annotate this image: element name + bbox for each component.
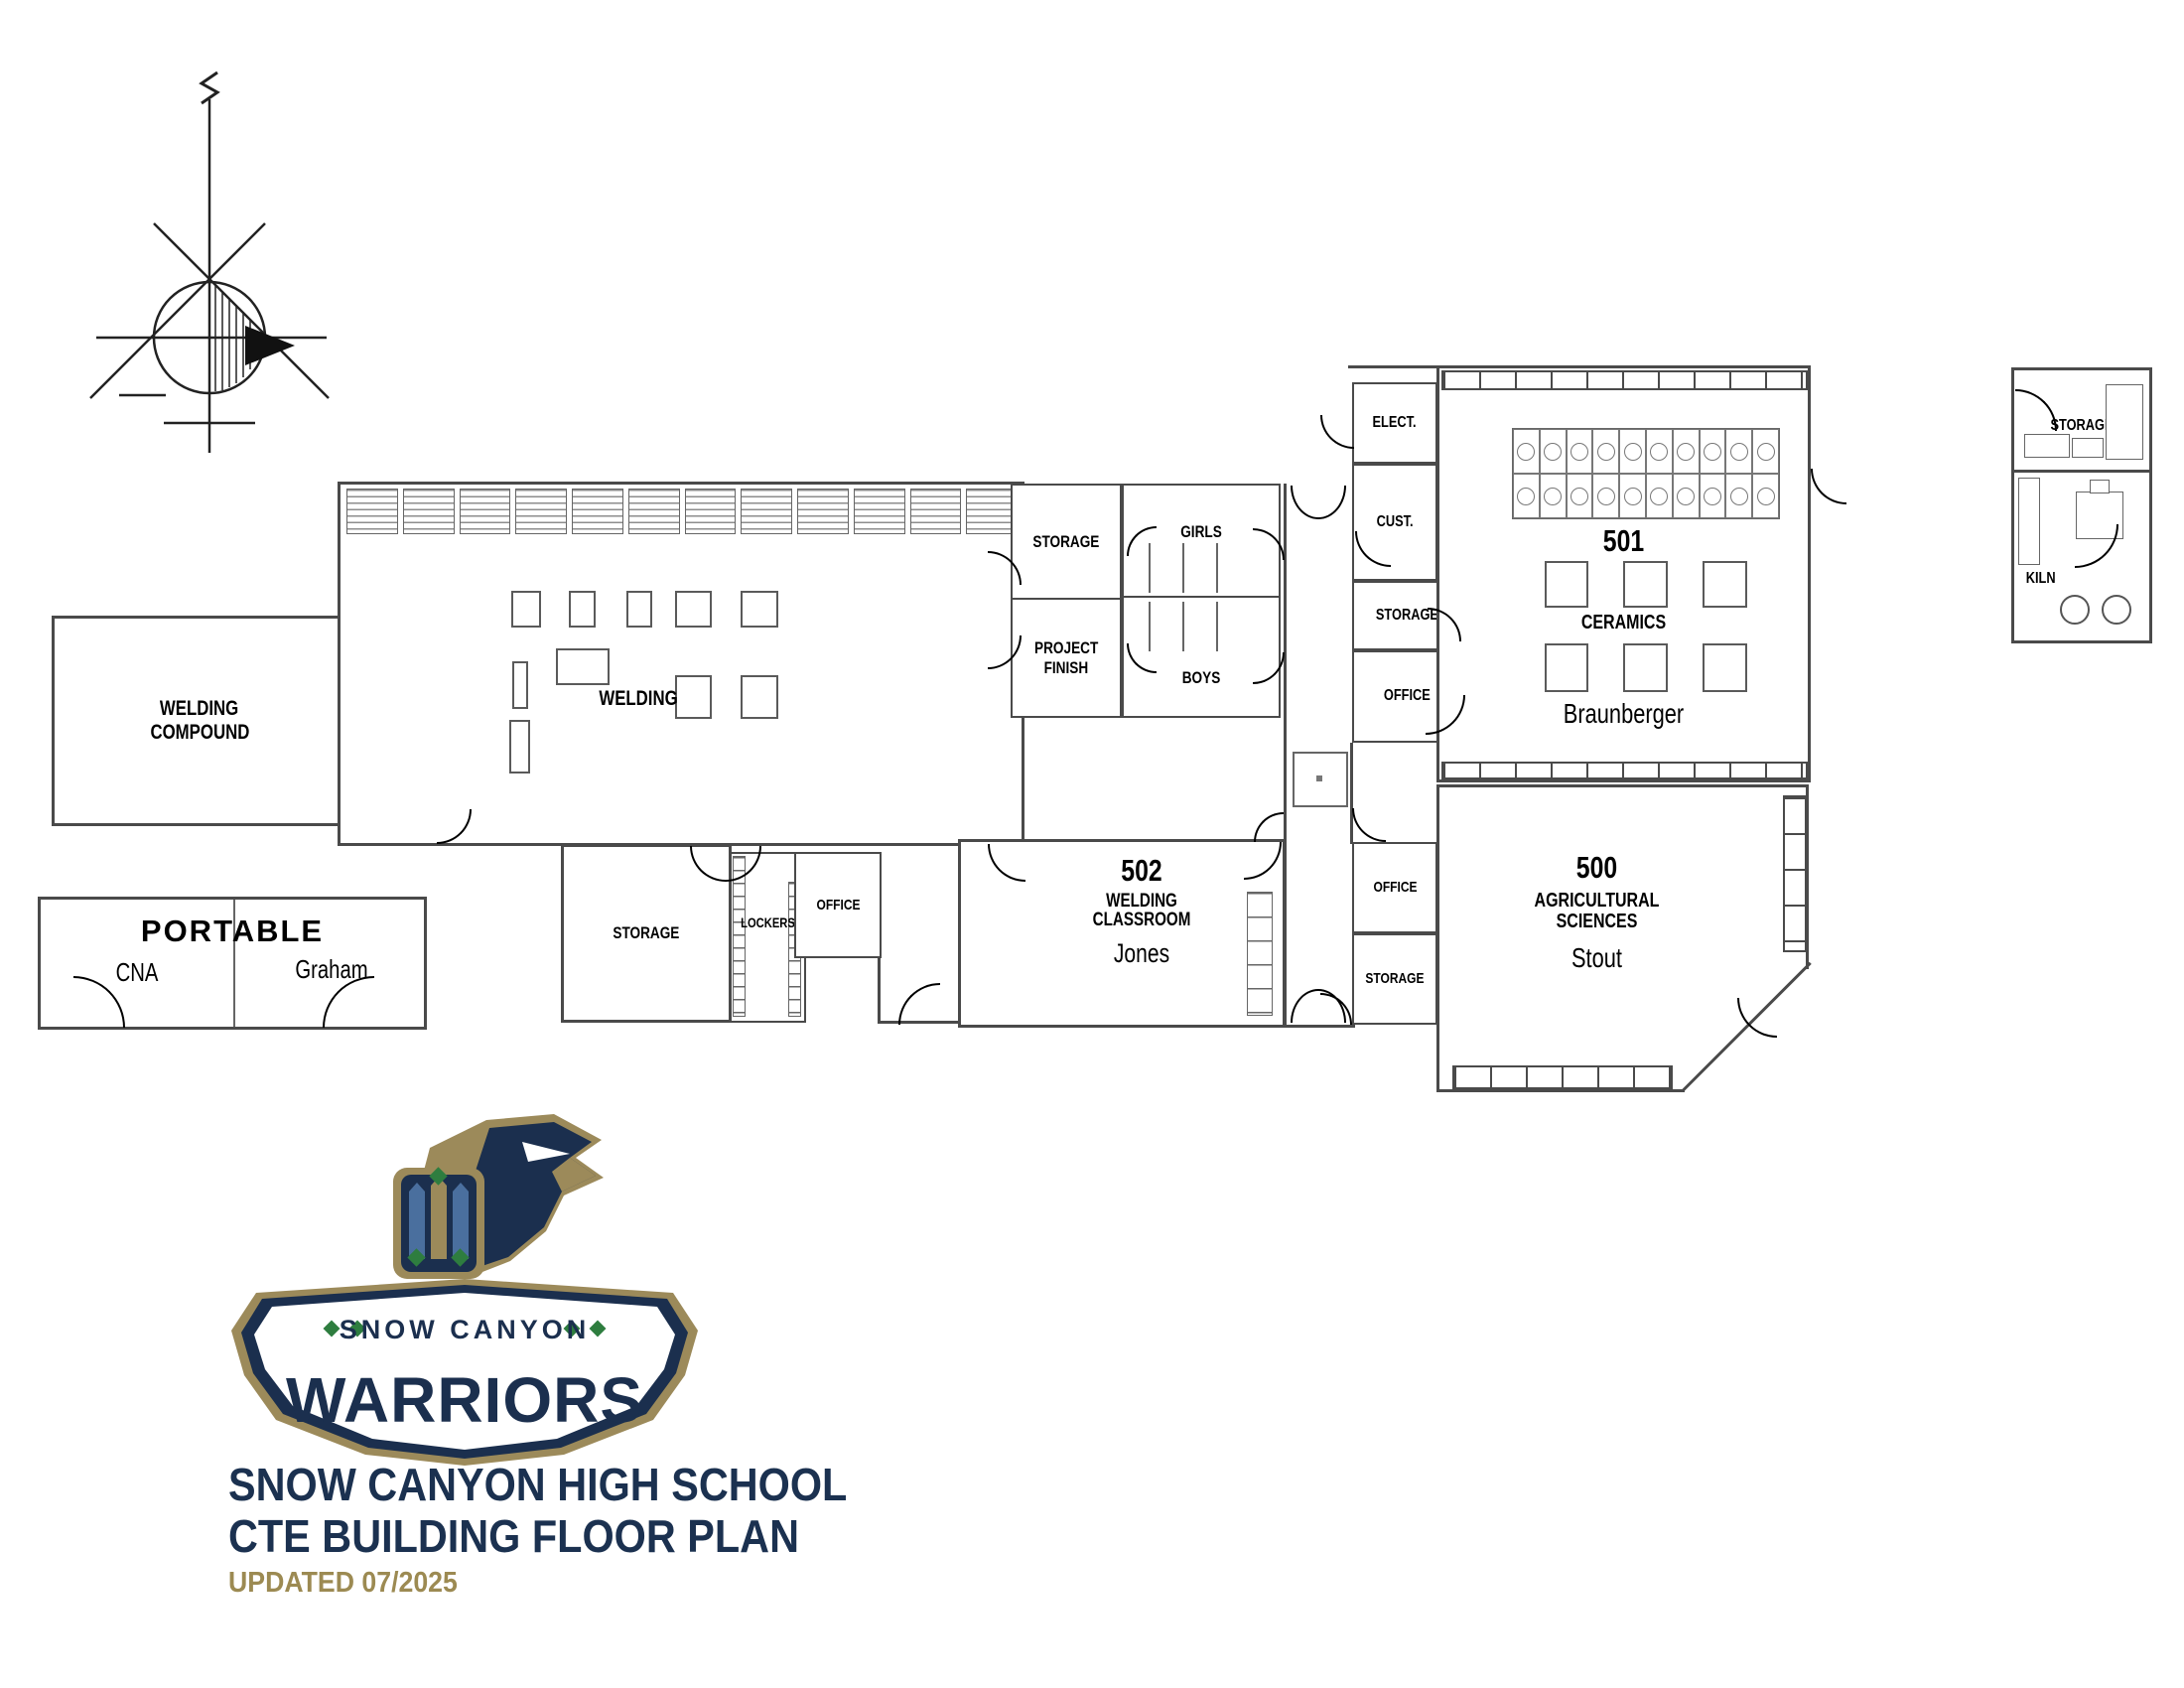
pottery-station	[1513, 474, 1540, 518]
room-label: OFFICE	[1373, 880, 1417, 896]
pottery-station	[1700, 474, 1726, 518]
door-arc	[1291, 486, 1318, 519]
welding-booth	[685, 489, 737, 534]
door-arc	[1352, 808, 1386, 842]
wall	[1436, 1089, 1685, 1092]
room-label: CERAMICS	[1476, 613, 1771, 633]
room-label: WELDING	[1044, 892, 1238, 912]
work-table	[511, 591, 541, 628]
work-table	[1703, 643, 1747, 692]
pottery-station	[1619, 474, 1646, 518]
welding-booths	[344, 487, 1020, 536]
shelf	[2024, 434, 2070, 458]
pottery-station	[1619, 429, 1646, 474]
room-label: FINISH	[1044, 659, 1089, 677]
warriors-logo: SNOW CANYON WARRIORS	[226, 1110, 703, 1468]
north-arrow-icon	[84, 60, 342, 457]
room-label: Graham	[256, 954, 406, 985]
pottery-station	[1752, 474, 1779, 518]
room-label: OFFICE	[1384, 688, 1431, 705]
room-label: WELDING	[400, 688, 877, 710]
work-table	[1545, 561, 1588, 608]
wall	[2014, 470, 2149, 473]
pottery-station	[1646, 429, 1673, 474]
room-label: STORAGE	[1365, 971, 1424, 987]
room-label: AGRICULTURAL	[1471, 891, 1723, 912]
work-table	[675, 591, 712, 628]
welding-booth	[403, 489, 455, 534]
room-label: CLASSROOM	[1044, 911, 1238, 930]
room-label: PORTABLE	[41, 914, 424, 949]
teacher-name: Stout	[1474, 942, 1719, 974]
room-label: GIRLS	[1140, 523, 1264, 541]
work-table	[556, 648, 610, 685]
door-arc	[1318, 486, 1346, 519]
banner-top-text: SNOW CANYON	[340, 1315, 591, 1344]
wall	[1350, 743, 1353, 844]
room-501-ceramics: 501 CERAMICS Braunberger	[1436, 365, 1811, 782]
shelf	[2072, 438, 2104, 458]
room-label: KILN	[2026, 571, 2056, 588]
wall	[1284, 1025, 1355, 1028]
room-label: STORAGE	[613, 924, 679, 942]
banner-main-text: WARRIORS	[286, 1364, 643, 1436]
welding-booth	[910, 489, 962, 534]
room-number: 501	[1476, 525, 1771, 558]
work-table	[1623, 561, 1668, 608]
bathroom-stalls	[1149, 602, 1250, 651]
column	[1293, 752, 1348, 807]
room-cust: CUST.	[1352, 464, 1437, 581]
window-band	[1441, 762, 1808, 779]
pottery-station	[1752, 429, 1779, 474]
pottery-station	[1725, 429, 1752, 474]
work-table	[741, 591, 778, 628]
wall	[1806, 784, 1809, 969]
pottery-station	[1540, 429, 1567, 474]
bathroom-stalls	[1149, 543, 1250, 593]
pottery-station	[1540, 474, 1567, 518]
kiln-wheel	[2102, 595, 2131, 625]
shelf	[2018, 478, 2040, 565]
work-table	[1545, 643, 1588, 692]
pottery-station	[1673, 429, 1700, 474]
room-number: 500	[1471, 852, 1723, 885]
eagle-mascot-icon	[393, 1114, 604, 1279]
kiln-equipment	[2090, 480, 2110, 493]
work-table	[1623, 643, 1668, 692]
door-arc	[1811, 469, 1846, 504]
welding-booth	[628, 489, 680, 534]
pottery-station	[1646, 474, 1673, 518]
wall	[1348, 365, 1439, 368]
room-number: 502	[1044, 855, 1238, 888]
room-office-ag: OFFICE	[1352, 842, 1437, 933]
room-welding-compound: WELDING COMPOUND	[52, 616, 347, 826]
door-arc	[1291, 989, 1318, 1023]
updated-date: UPDATED 07/2025	[228, 1567, 458, 1600]
room-label: SCIENCES	[1471, 912, 1723, 932]
room-500-agricultural-sciences: 500 AGRICULTURAL SCIENCES Stout	[1436, 784, 1809, 1092]
pottery-station	[1673, 474, 1700, 518]
pottery-station	[1592, 474, 1619, 518]
wall	[1284, 484, 1287, 1028]
room-project-finish: PROJECT FINISH	[1011, 598, 1122, 718]
room-label: BOYS	[1140, 669, 1264, 687]
room-elect: ELECT.	[1352, 382, 1437, 464]
kiln-wheel	[2060, 595, 2090, 625]
pottery-station	[1592, 429, 1619, 474]
door-arc	[1320, 415, 1354, 449]
room-label: ELECT.	[1373, 415, 1417, 432]
pottery-wheel-stations	[1512, 428, 1780, 519]
teacher-name: Braunberger	[1480, 698, 1767, 730]
shelf	[2106, 384, 2143, 460]
door-arc	[1254, 812, 1284, 842]
welding-booth	[572, 489, 623, 534]
room-office-sw: OFFICE	[794, 852, 882, 958]
work-table	[626, 591, 652, 628]
room-label: OFFICE	[816, 898, 860, 914]
pottery-station	[1567, 474, 1593, 518]
floor-plan-page: WELDING COMPOUND WELDING STORAGE PROJECT…	[0, 0, 2184, 1688]
room-label: STORAGE	[1032, 533, 1099, 551]
welding-booth	[854, 489, 905, 534]
welding-booth	[515, 489, 567, 534]
room-storage-ag: STORAGE	[1352, 933, 1437, 1025]
welding-booth	[346, 489, 398, 534]
window-band	[1783, 795, 1807, 952]
work-table	[569, 591, 596, 628]
room-label: PROJECT	[1034, 639, 1098, 657]
welding-booth	[741, 489, 792, 534]
room-welding-shop: WELDING	[338, 482, 1024, 846]
room-label: COMPOUND	[150, 722, 249, 744]
welding-booth	[460, 489, 511, 534]
pottery-station	[1513, 429, 1540, 474]
window-band	[1441, 370, 1808, 390]
work-table	[1703, 561, 1747, 608]
door-arc	[898, 983, 940, 1025]
plan-title: CTE BUILDING FLOOR PLAN	[228, 1509, 799, 1563]
door-arc	[1320, 993, 1352, 1025]
pottery-station	[1700, 429, 1726, 474]
room-label: WELDING	[160, 698, 238, 720]
window-band	[1452, 1065, 1673, 1089]
teacher-name: Jones	[1047, 938, 1236, 969]
room-label: CUST.	[1376, 514, 1413, 531]
pottery-station	[1725, 474, 1752, 518]
welding-booth	[797, 489, 849, 534]
room-storage-nw: STORAGE	[1011, 484, 1122, 600]
work-table	[509, 720, 530, 774]
pottery-station	[1567, 429, 1593, 474]
school-name-title: SNOW CANYON HIGH SCHOOL	[228, 1458, 847, 1511]
wall	[878, 956, 881, 1023]
warriors-banner: SNOW CANYON WARRIORS	[231, 1279, 698, 1466]
room-label: LOCKERS	[739, 915, 796, 930]
